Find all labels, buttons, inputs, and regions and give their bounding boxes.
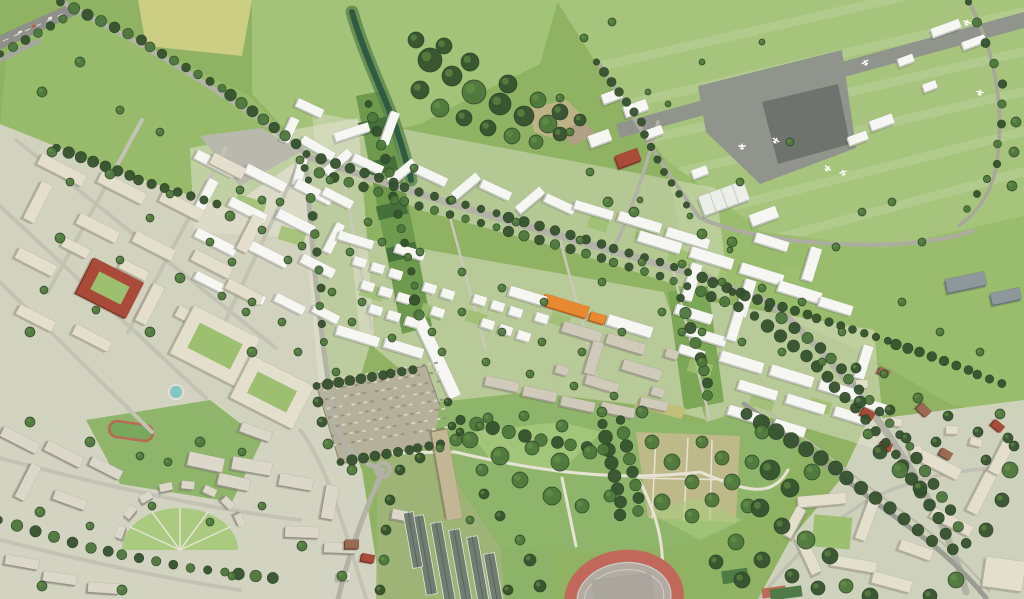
tree bbox=[431, 99, 449, 117]
tree bbox=[499, 75, 517, 93]
tree-highlight bbox=[554, 456, 561, 463]
tree bbox=[479, 489, 489, 499]
tree-highlight bbox=[87, 523, 90, 526]
tree bbox=[386, 369, 395, 378]
tree-highlight bbox=[349, 467, 353, 471]
tree-highlight bbox=[39, 583, 43, 587]
building-roof bbox=[345, 540, 359, 549]
tree bbox=[981, 455, 991, 465]
tree bbox=[736, 178, 744, 186]
tree bbox=[63, 147, 75, 159]
tree bbox=[892, 462, 908, 478]
tree bbox=[206, 238, 214, 246]
tree bbox=[575, 499, 589, 513]
tree bbox=[47, 147, 57, 157]
tree bbox=[961, 538, 971, 548]
tree bbox=[981, 38, 990, 47]
tree bbox=[556, 94, 564, 102]
tree bbox=[687, 213, 693, 219]
tree bbox=[720, 297, 730, 307]
tree bbox=[25, 417, 35, 427]
tree-highlight bbox=[107, 171, 111, 175]
tree bbox=[116, 256, 124, 264]
tree bbox=[374, 187, 383, 196]
tree bbox=[408, 32, 424, 48]
tree-highlight bbox=[77, 59, 81, 63]
tree bbox=[873, 445, 887, 459]
tree bbox=[345, 376, 355, 386]
tree-highlight bbox=[631, 209, 635, 213]
tree bbox=[574, 114, 586, 126]
tree bbox=[157, 49, 167, 59]
tree bbox=[347, 465, 357, 475]
tree bbox=[670, 277, 678, 285]
tree bbox=[498, 284, 506, 292]
tree bbox=[630, 479, 642, 491]
tree-highlight bbox=[581, 35, 584, 38]
tree bbox=[482, 358, 490, 366]
tree bbox=[911, 452, 923, 464]
tree bbox=[765, 298, 775, 308]
tree-highlight bbox=[983, 457, 987, 461]
tree-highlight bbox=[743, 501, 749, 507]
tree-highlight bbox=[577, 501, 583, 507]
tree bbox=[284, 256, 292, 264]
tree bbox=[310, 230, 319, 239]
tree bbox=[680, 307, 692, 319]
tree bbox=[751, 499, 769, 517]
tree bbox=[598, 278, 606, 286]
tree bbox=[306, 193, 315, 202]
tree bbox=[915, 347, 925, 357]
tree bbox=[617, 427, 630, 440]
tree-highlight bbox=[558, 422, 563, 427]
tree bbox=[912, 524, 924, 536]
tree-highlight bbox=[483, 359, 486, 362]
tree bbox=[25, 327, 35, 337]
tree bbox=[697, 272, 708, 283]
tree bbox=[156, 128, 164, 136]
tree-highlight bbox=[779, 349, 782, 352]
tree-highlight bbox=[389, 335, 392, 338]
tree bbox=[316, 154, 327, 165]
tree-highlight bbox=[539, 339, 542, 342]
tree bbox=[145, 327, 155, 337]
tree bbox=[697, 357, 707, 367]
tree bbox=[21, 35, 30, 44]
tree bbox=[305, 177, 311, 183]
tree bbox=[927, 352, 937, 362]
tree-highlight bbox=[542, 118, 549, 125]
tree-highlight bbox=[679, 261, 682, 264]
tree bbox=[186, 564, 195, 573]
tree-highlight bbox=[747, 457, 753, 463]
tree-highlight bbox=[417, 455, 421, 459]
tree-highlight bbox=[259, 227, 262, 230]
tree-highlight bbox=[297, 157, 300, 160]
tree bbox=[797, 531, 815, 549]
tree-highlight bbox=[492, 96, 501, 105]
tree-highlight bbox=[387, 497, 391, 501]
tree bbox=[218, 292, 226, 300]
tree bbox=[75, 151, 86, 162]
tree bbox=[491, 447, 509, 465]
building bbox=[979, 556, 1024, 594]
tree bbox=[799, 442, 814, 457]
tree bbox=[781, 479, 799, 497]
tree-highlight bbox=[526, 556, 531, 561]
tree bbox=[337, 571, 347, 581]
tree bbox=[684, 283, 691, 290]
tree-highlight bbox=[599, 279, 602, 282]
tree bbox=[812, 314, 821, 323]
tree-highlight bbox=[800, 534, 807, 541]
tree bbox=[512, 218, 520, 226]
tree-highlight bbox=[609, 19, 612, 22]
tree-highlight bbox=[981, 525, 987, 531]
tree bbox=[388, 334, 396, 342]
tree bbox=[462, 201, 470, 209]
tree-highlight bbox=[285, 257, 288, 260]
tree-highlight bbox=[700, 60, 702, 62]
tree bbox=[869, 492, 882, 505]
tree bbox=[660, 168, 667, 175]
tree bbox=[269, 122, 280, 133]
tree-highlight bbox=[147, 215, 150, 218]
tree bbox=[456, 428, 464, 436]
tree bbox=[645, 89, 651, 95]
tree bbox=[448, 196, 456, 204]
tree bbox=[318, 320, 326, 328]
tree bbox=[206, 77, 214, 85]
tree-highlight bbox=[728, 248, 730, 250]
building bbox=[943, 426, 958, 436]
tree-highlight bbox=[656, 496, 662, 502]
tree-highlight bbox=[698, 438, 703, 443]
building bbox=[85, 582, 120, 597]
tree bbox=[298, 242, 306, 250]
tree bbox=[117, 550, 127, 560]
tree-highlight bbox=[599, 409, 603, 413]
building-roof bbox=[946, 426, 958, 434]
tree bbox=[512, 472, 528, 488]
tree-highlight bbox=[207, 239, 210, 242]
tree-highlight bbox=[517, 109, 525, 117]
tree-highlight bbox=[259, 197, 262, 200]
tree bbox=[480, 120, 496, 136]
tree bbox=[995, 493, 1009, 507]
tree-highlight bbox=[997, 495, 1003, 501]
tree-highlight bbox=[457, 429, 460, 432]
tree-highlight bbox=[576, 116, 581, 121]
tree bbox=[225, 211, 235, 221]
tree bbox=[605, 456, 618, 469]
tree-highlight bbox=[494, 450, 501, 457]
tree bbox=[448, 422, 456, 430]
tree bbox=[461, 53, 479, 71]
tree bbox=[503, 585, 513, 595]
tree bbox=[278, 318, 286, 326]
tree bbox=[783, 433, 799, 449]
tree bbox=[236, 186, 244, 194]
tree-highlight bbox=[299, 543, 303, 547]
building-roof bbox=[88, 582, 121, 594]
tree bbox=[401, 239, 409, 247]
building-roof bbox=[181, 480, 195, 489]
tree-highlight bbox=[295, 349, 298, 352]
tree-highlight bbox=[149, 503, 152, 506]
tree bbox=[30, 526, 41, 537]
tree bbox=[166, 190, 174, 198]
tree bbox=[990, 59, 999, 68]
tree bbox=[638, 258, 646, 266]
tree-highlight bbox=[864, 590, 870, 596]
tree bbox=[519, 217, 529, 227]
tree bbox=[323, 439, 333, 449]
tree-highlight bbox=[379, 239, 382, 242]
tree-highlight bbox=[527, 443, 533, 449]
tree-highlight bbox=[919, 239, 922, 242]
tree-highlight bbox=[299, 243, 302, 246]
tree-highlight bbox=[787, 571, 793, 577]
tree bbox=[614, 509, 626, 521]
tree-highlight bbox=[950, 574, 956, 580]
tree-highlight bbox=[319, 419, 323, 423]
tree-highlight bbox=[571, 383, 574, 386]
tree bbox=[760, 460, 780, 480]
tree bbox=[145, 42, 155, 52]
tree bbox=[586, 168, 594, 176]
tree bbox=[566, 128, 574, 136]
tree bbox=[337, 458, 344, 465]
tree bbox=[221, 568, 229, 576]
tree bbox=[483, 413, 493, 423]
tree-highlight bbox=[1004, 464, 1010, 470]
tree bbox=[891, 450, 900, 459]
aerial-photomontage-stage bbox=[0, 0, 1024, 599]
tree bbox=[425, 442, 434, 451]
tree-highlight bbox=[760, 40, 762, 42]
tree-highlight bbox=[638, 198, 640, 200]
tree bbox=[320, 338, 327, 345]
tree bbox=[903, 343, 913, 353]
tree bbox=[616, 416, 625, 425]
tree-highlight bbox=[937, 329, 940, 332]
tree bbox=[629, 207, 639, 217]
tree bbox=[258, 196, 266, 204]
tree bbox=[854, 481, 867, 494]
tree-highlight bbox=[536, 582, 541, 587]
tree-highlight bbox=[464, 434, 470, 440]
tree bbox=[787, 340, 799, 352]
tree bbox=[994, 140, 1002, 148]
tree bbox=[415, 453, 425, 463]
tree bbox=[495, 511, 505, 521]
tree bbox=[580, 34, 588, 42]
tree-highlight bbox=[279, 319, 282, 322]
tree bbox=[665, 101, 671, 107]
tree bbox=[147, 179, 157, 189]
building-roof bbox=[285, 526, 319, 538]
tree bbox=[534, 580, 546, 592]
tree bbox=[345, 163, 355, 173]
tree-highlight bbox=[925, 591, 931, 597]
tree-highlight bbox=[167, 191, 170, 194]
tree bbox=[186, 192, 195, 201]
tree bbox=[778, 302, 788, 312]
tree-highlight bbox=[505, 587, 509, 591]
tree bbox=[55, 233, 65, 243]
tree-highlight bbox=[517, 537, 521, 541]
tree bbox=[258, 226, 266, 234]
tree bbox=[538, 338, 546, 346]
tree bbox=[364, 218, 372, 226]
tree bbox=[685, 475, 699, 489]
tree bbox=[136, 35, 146, 45]
tree bbox=[656, 272, 664, 280]
tree bbox=[607, 77, 616, 86]
tree-highlight bbox=[165, 459, 168, 462]
tree bbox=[291, 139, 301, 149]
tree bbox=[446, 211, 454, 219]
tree bbox=[623, 453, 635, 465]
tree bbox=[924, 499, 936, 511]
tree bbox=[498, 328, 506, 336]
tree bbox=[844, 374, 854, 384]
tree bbox=[1011, 117, 1021, 127]
inner-courtyard bbox=[812, 514, 853, 549]
tree bbox=[360, 168, 370, 178]
tree bbox=[597, 407, 607, 417]
tree bbox=[502, 425, 515, 438]
tree bbox=[95, 15, 106, 26]
tree bbox=[633, 492, 644, 503]
tree-highlight bbox=[813, 583, 819, 589]
tree-highlight bbox=[1011, 443, 1015, 447]
tree-highlight bbox=[177, 275, 181, 279]
tree bbox=[898, 298, 906, 306]
tree bbox=[776, 312, 788, 324]
tree bbox=[328, 288, 336, 296]
tree bbox=[348, 318, 356, 326]
tree bbox=[599, 430, 613, 444]
tree-highlight bbox=[243, 309, 246, 312]
tree bbox=[247, 106, 258, 117]
tree-highlight bbox=[207, 519, 210, 522]
tree bbox=[200, 196, 208, 204]
tree-highlight bbox=[514, 474, 520, 480]
tree bbox=[654, 494, 670, 510]
tree-highlight bbox=[763, 463, 771, 471]
tree bbox=[48, 531, 59, 542]
tree bbox=[597, 254, 606, 263]
tree bbox=[913, 481, 927, 495]
tree-highlight bbox=[458, 112, 464, 118]
tree bbox=[456, 415, 466, 425]
tree bbox=[317, 417, 327, 427]
tree-highlight bbox=[377, 587, 381, 591]
tree bbox=[456, 110, 472, 126]
tree bbox=[696, 286, 707, 297]
tree bbox=[428, 328, 436, 336]
tree bbox=[436, 38, 452, 54]
tree bbox=[609, 244, 618, 253]
tree-highlight bbox=[249, 349, 253, 353]
tree bbox=[123, 28, 134, 39]
tree bbox=[998, 80, 1007, 89]
tree bbox=[697, 229, 707, 239]
tree bbox=[851, 363, 861, 373]
tree bbox=[88, 156, 99, 167]
tree bbox=[640, 267, 648, 275]
tree-highlight bbox=[527, 371, 530, 374]
tree-highlight bbox=[445, 69, 453, 77]
tree-highlight bbox=[325, 441, 329, 445]
tree-highlight bbox=[915, 483, 921, 489]
tree bbox=[998, 100, 1006, 108]
tree bbox=[148, 502, 156, 510]
tree-highlight bbox=[799, 299, 802, 302]
tree-highlight bbox=[585, 447, 591, 453]
tree bbox=[228, 258, 236, 266]
tree bbox=[379, 555, 389, 565]
tree bbox=[778, 348, 786, 356]
tree-highlight bbox=[719, 279, 722, 282]
tree bbox=[872, 333, 880, 341]
tree bbox=[540, 298, 548, 306]
tree bbox=[430, 192, 438, 200]
tree-highlight bbox=[381, 557, 385, 561]
tree bbox=[683, 202, 689, 208]
tree-highlight bbox=[67, 179, 70, 182]
tree bbox=[136, 452, 144, 460]
tree bbox=[242, 308, 250, 316]
tree bbox=[462, 80, 486, 104]
tree-highlight bbox=[157, 129, 160, 132]
tree bbox=[677, 294, 685, 302]
tree-highlight bbox=[422, 52, 432, 62]
tree bbox=[625, 249, 633, 257]
tree bbox=[308, 211, 317, 220]
tree-highlight bbox=[819, 359, 822, 362]
tree bbox=[250, 570, 262, 582]
tree bbox=[458, 308, 466, 316]
tree bbox=[173, 188, 182, 197]
tree bbox=[37, 87, 47, 97]
tree bbox=[858, 208, 866, 216]
tree-highlight bbox=[659, 309, 662, 312]
tree bbox=[75, 57, 85, 67]
tree bbox=[578, 348, 586, 356]
tree-highlight bbox=[485, 415, 489, 419]
tree-highlight bbox=[666, 102, 668, 104]
tree bbox=[314, 168, 325, 179]
tree-highlight bbox=[1013, 119, 1017, 123]
tree-highlight bbox=[887, 407, 891, 411]
tree bbox=[169, 560, 178, 569]
tree bbox=[622, 98, 631, 107]
tree bbox=[620, 440, 633, 453]
tree bbox=[322, 379, 333, 390]
tree bbox=[861, 415, 871, 425]
tree-highlight bbox=[277, 199, 280, 202]
tree bbox=[1007, 181, 1017, 191]
tree bbox=[116, 106, 124, 114]
tree-highlight bbox=[259, 503, 262, 506]
tree bbox=[826, 353, 837, 364]
tree bbox=[750, 312, 759, 321]
tree-highlight bbox=[736, 574, 742, 580]
